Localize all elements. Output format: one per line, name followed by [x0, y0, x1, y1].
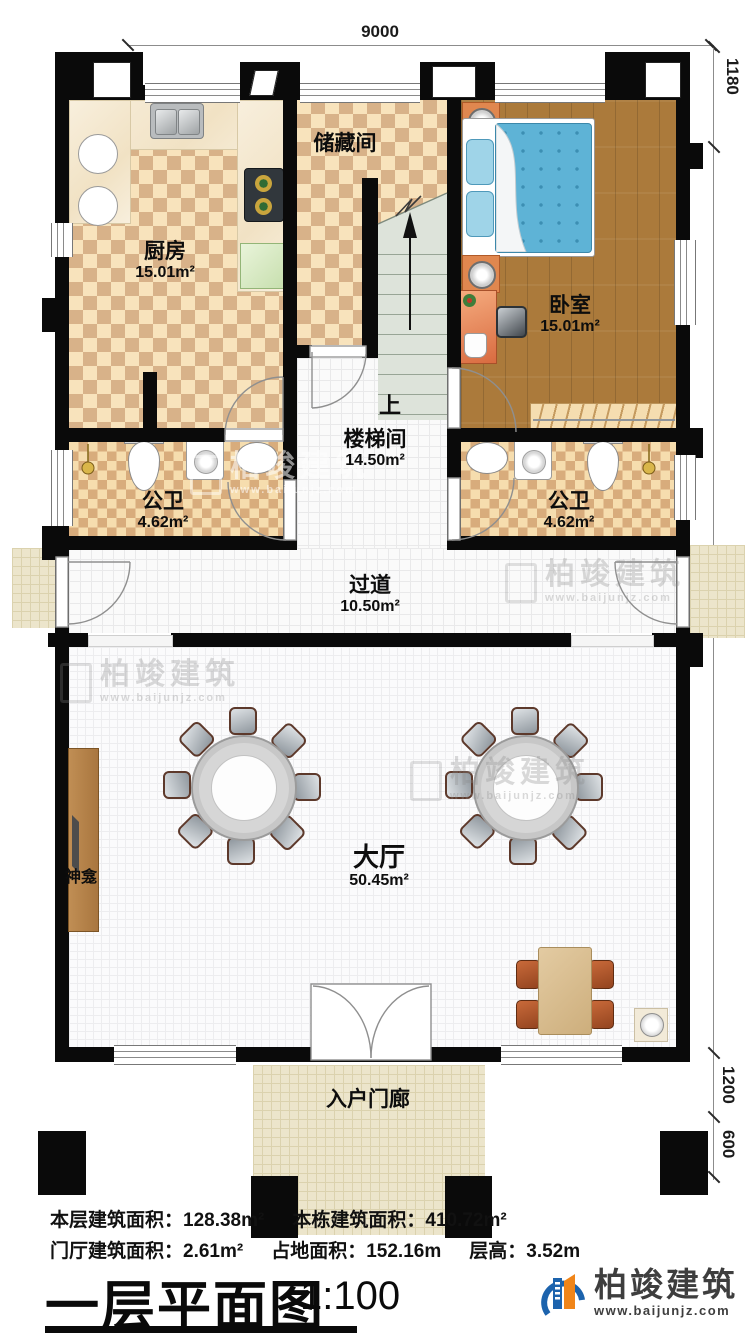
lamp — [468, 261, 496, 289]
label-bath-left: 公卫 4.62m² — [93, 490, 233, 531]
stat-height: 层高：3.52m — [469, 1236, 580, 1263]
stats-line-2: 门厅建筑面积：2.61m² 占地面积：152.16m 层高：3.52m — [50, 1236, 580, 1263]
burner — [255, 175, 272, 192]
room-name: 卧室 — [500, 294, 640, 318]
dining-table-round — [162, 706, 322, 866]
dining-table-round — [444, 706, 604, 866]
stat-value: 2.61m² — [183, 1241, 243, 1262]
brand-logo: 柏竣建筑 www.baijunjz.com — [538, 1268, 738, 1322]
mattress — [495, 123, 592, 253]
stat-label: 本栋建筑面积： — [292, 1210, 425, 1231]
window — [501, 1045, 622, 1065]
title-scale: 1:100 — [300, 1274, 400, 1319]
stat-foyer-area: 门厅建筑面积：2.61m² — [50, 1236, 243, 1263]
dim-right-porch: 1200 — [718, 1066, 738, 1104]
brand-name: 柏竣建筑 — [594, 1268, 738, 1301]
stat-value: 152.16m — [366, 1241, 441, 1262]
stats-line-1: 本层建筑面积：128.38m² 本栋建筑面积：410.72m² — [50, 1205, 507, 1232]
kitchen-appliance — [240, 243, 285, 289]
dim-tick — [708, 1111, 721, 1124]
dim-tick — [708, 1047, 721, 1060]
footing-block — [660, 1131, 708, 1195]
label-corridor: 过道 10.50m² — [300, 574, 440, 615]
stat-value: 128.38m² — [183, 1210, 264, 1231]
pier-nub — [690, 428, 703, 458]
wall-bedroom-south — [447, 428, 676, 442]
stat-label: 层高： — [469, 1241, 526, 1262]
room-area: 50.45m² — [309, 872, 449, 890]
dim-top-width: 9000 — [330, 22, 430, 42]
wall-hall-north-a — [48, 633, 88, 647]
room-area: 15.01m² — [500, 318, 640, 336]
dim-right-top: 1180 — [722, 58, 742, 95]
washing-machine — [514, 436, 552, 480]
wall-bath-right-south — [447, 536, 690, 550]
room-area: 4.62m² — [93, 514, 233, 532]
brand-logo-icon — [538, 1268, 586, 1322]
stat-value: 410.72m² — [425, 1210, 506, 1231]
title-underline — [45, 1326, 357, 1333]
washer-door — [522, 450, 546, 474]
window — [51, 450, 73, 526]
round-table — [191, 735, 297, 841]
wall-kitchen-stub — [143, 372, 157, 428]
wall-storage-south — [283, 345, 312, 358]
shrine-cabinet — [68, 748, 99, 932]
dim-right-steps: 600 — [718, 1130, 738, 1158]
wardrobe-rail — [533, 419, 675, 421]
washer-door — [194, 450, 218, 474]
label-hall: 大厅 50.45m² — [309, 843, 449, 890]
window — [674, 240, 696, 325]
room-area: 4.62m² — [499, 514, 639, 532]
dim-tick — [708, 1171, 721, 1184]
flue-box — [432, 66, 476, 98]
sink-basin — [178, 109, 200, 135]
nightstand — [462, 255, 500, 293]
wall-hall-north-b — [171, 633, 571, 647]
burner — [255, 198, 272, 215]
window — [495, 83, 605, 103]
room-name: 储藏间 — [275, 132, 415, 156]
stat-label: 门厅建筑面积： — [50, 1241, 183, 1262]
counter-bowl — [78, 186, 118, 226]
dim-tick — [708, 41, 721, 54]
pillow — [466, 191, 494, 237]
label-stairwell: 楼梯间 14.50m² — [305, 428, 445, 469]
label-kitchen: 厨房 15.01m² — [95, 240, 235, 281]
bath-sink — [466, 442, 508, 474]
wall-bath-left-south — [55, 536, 297, 550]
window — [114, 1045, 236, 1065]
passage-opening — [571, 635, 654, 647]
bath-sink — [236, 442, 278, 474]
stair-up-text: 上 — [379, 393, 401, 418]
sink-basin — [155, 109, 177, 135]
wall-kitchen-storage — [283, 100, 297, 548]
stat-building-area: 本栋建筑面积：410.72m² — [292, 1205, 506, 1232]
washing-machine — [186, 436, 224, 480]
room-name: 公卫 — [499, 490, 639, 514]
kitchen-sink — [150, 103, 204, 139]
wall-stair-west — [362, 178, 378, 358]
desk — [459, 290, 497, 364]
shrine-tablet — [72, 815, 79, 873]
desk-lamp — [464, 333, 487, 358]
floor-plan-canvas: 9000 1180 13800 1200 600 — [0, 0, 750, 1337]
stat-label: 本层建筑面积： — [50, 1210, 183, 1231]
room-name: 过道 — [300, 574, 440, 598]
window — [51, 223, 73, 257]
window — [145, 83, 240, 103]
wall-bedroom-west — [447, 100, 461, 548]
chair — [589, 960, 614, 989]
square-table — [538, 947, 592, 1035]
wall-hall-north-c — [652, 633, 690, 647]
room-name: 神龛 — [65, 869, 97, 886]
chair — [589, 1000, 614, 1029]
stove — [244, 168, 284, 222]
passage-opening — [88, 635, 173, 647]
pier-nub — [42, 526, 55, 560]
room-area: 15.01m² — [95, 264, 235, 282]
dim-tick — [708, 141, 721, 154]
room-name: 楼梯间 — [305, 428, 445, 452]
room-area: 10.50m² — [300, 598, 440, 616]
desk-plant — [463, 294, 476, 307]
label-bedroom: 卧室 15.01m² — [500, 294, 640, 335]
terrace-right — [690, 545, 745, 638]
room-name: 厨房 — [95, 240, 235, 264]
window — [674, 455, 696, 520]
bed — [462, 118, 595, 257]
brand-url: www.baijunjz.com — [594, 1301, 738, 1322]
stat-land-area: 占地面积：152.16m — [271, 1236, 441, 1263]
pot-stand — [634, 1008, 668, 1042]
label-bath-right: 公卫 4.62m² — [499, 490, 639, 531]
pier-nub — [42, 298, 55, 332]
stat-value: 3.52m — [526, 1241, 580, 1262]
label-stair-up: 上 — [370, 394, 410, 419]
room-name: 大厅 — [309, 843, 449, 872]
terrace-left — [12, 548, 55, 628]
room-name: 入户门廊 — [326, 1088, 410, 1111]
label-porch: 入户门廊 — [288, 1088, 448, 1112]
stat-floor-area: 本层建筑面积：128.38m² — [50, 1205, 264, 1232]
pier-nub — [690, 633, 703, 667]
pillow — [466, 139, 494, 185]
pier-nub — [690, 143, 703, 169]
label-shrine: 神龛 — [55, 869, 107, 887]
round-table — [473, 735, 579, 841]
room-area: 14.50m² — [305, 452, 445, 470]
pot — [640, 1013, 664, 1037]
dim-line-top — [127, 45, 712, 46]
flue-box — [93, 62, 131, 98]
stat-label: 占地面积： — [271, 1241, 366, 1262]
label-storage: 储藏间 — [275, 132, 415, 156]
window — [300, 83, 420, 103]
wall-kitchen-south — [55, 428, 225, 442]
counter-bowl — [78, 134, 118, 174]
footing-block — [38, 1131, 86, 1195]
flue-box — [645, 62, 681, 98]
room-name: 公卫 — [93, 490, 233, 514]
